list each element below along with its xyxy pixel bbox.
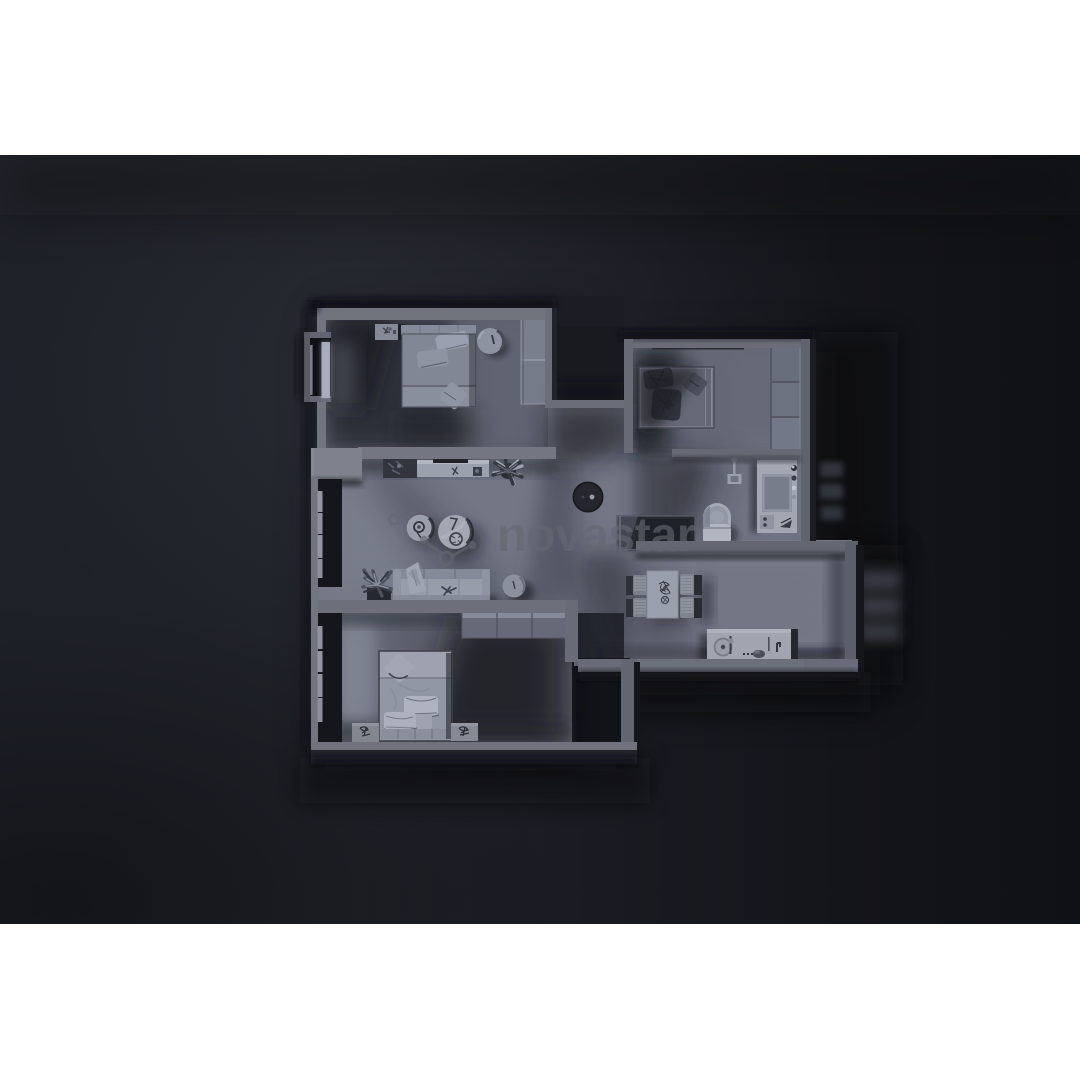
- svg-text:novastar: novastar: [497, 508, 696, 562]
